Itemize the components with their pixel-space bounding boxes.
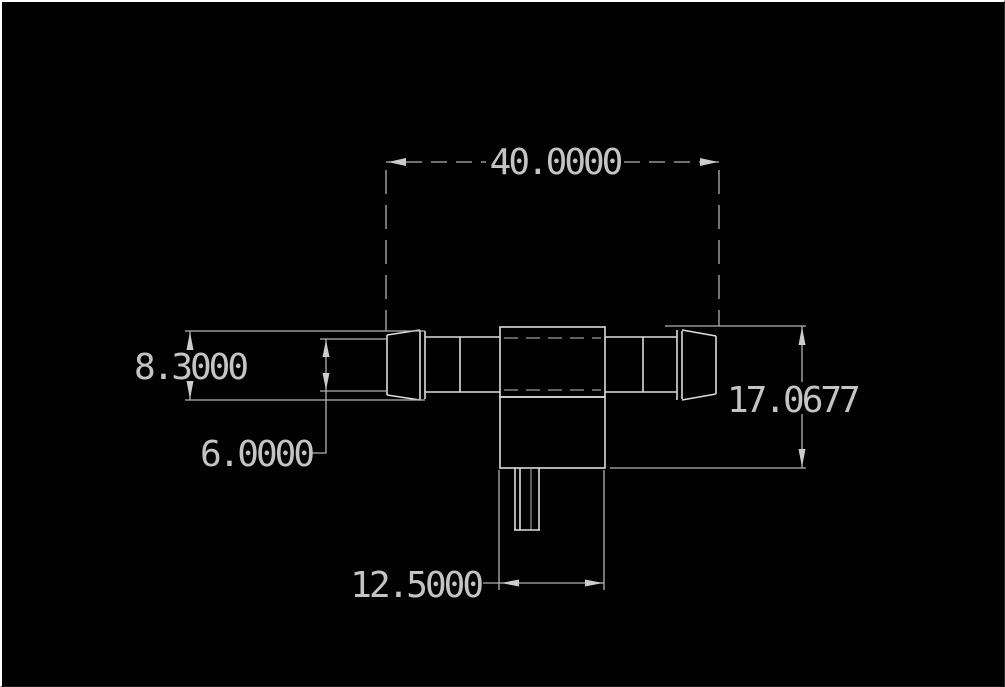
dim-overall-height-label: 17.0677: [727, 380, 858, 421]
hidden-bore-lines: [504, 338, 601, 390]
dim-barb-diameter-label: 8.3000: [134, 347, 247, 388]
arrowhead-down: [799, 449, 806, 467]
right-tube-walls: [605, 337, 677, 392]
cad-drawing: 40.0000 8.3000 6.0000 17.0677: [2, 2, 1004, 686]
left-tube-walls: [425, 337, 500, 392]
dimension-barb-diameter: 8.3000: [134, 331, 425, 400]
dim-stem-width-label: 12.5000: [350, 565, 482, 606]
dimension-overall-length: 40.0000: [386, 142, 719, 331]
right-barb-cone: [682, 330, 716, 400]
dim-tube-diameter-label: 6.0000: [200, 434, 313, 475]
arrowhead-up: [323, 340, 330, 357]
left-barb-cone: [387, 330, 420, 400]
arrowhead-up: [799, 327, 806, 345]
arrowhead-right: [585, 580, 603, 587]
dim-overall-length-label: 40.0000: [490, 142, 622, 183]
arrowhead-down: [323, 373, 330, 390]
dimension-stem-width: 12.5000: [350, 470, 604, 606]
fitting-outline: [387, 327, 716, 530]
arrowhead-right: [700, 158, 718, 166]
dimension-overall-height: 17.0677: [610, 326, 858, 468]
cad-model-space: 40.0000 8.3000 6.0000 17.0677: [0, 0, 1005, 687]
arrowhead-left: [388, 158, 406, 166]
stem-block: [500, 397, 605, 468]
arrowhead-left: [501, 580, 519, 587]
prong-outline: [515, 468, 539, 530]
